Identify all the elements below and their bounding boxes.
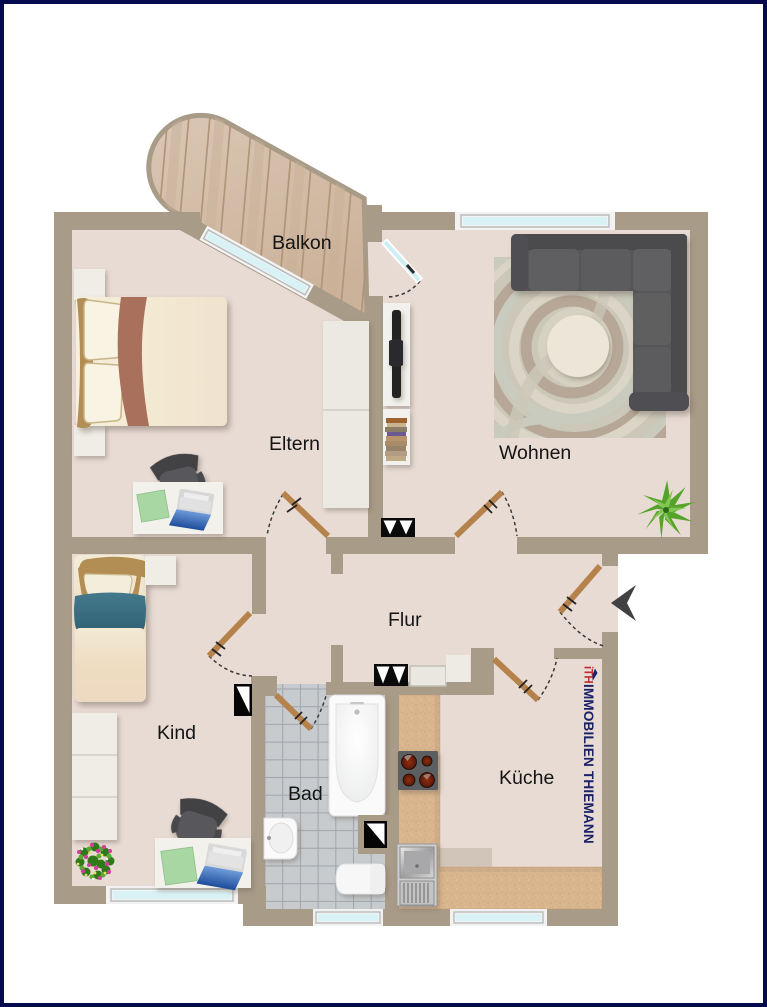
svg-text:Flur: Flur [388, 609, 422, 631]
svg-text:Balkon: Balkon [272, 232, 332, 254]
svg-text:Bad: Bad [288, 783, 323, 805]
svg-text:Küche: Küche [499, 767, 554, 789]
svg-text:IMMOBILIEN THIEMANN: IMMOBILIEN THIEMANN [581, 684, 596, 844]
svg-text:Wohnen: Wohnen [499, 442, 571, 464]
svg-text:Eltern: Eltern [269, 433, 320, 455]
svg-text:iTH: iTH [582, 666, 594, 683]
svg-text:Kind: Kind [157, 722, 196, 744]
